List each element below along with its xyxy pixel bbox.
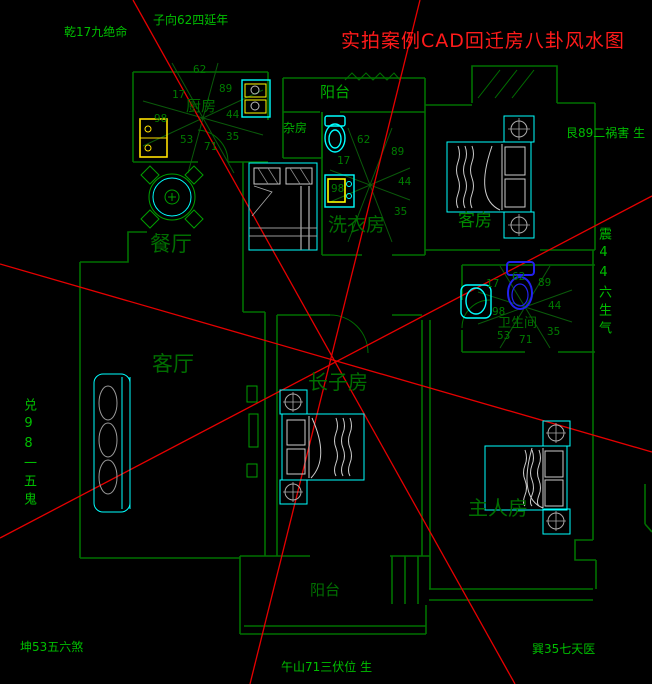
bagua-label-wu: 午山71三伏位 生 xyxy=(281,661,372,673)
bagua-number: 17 xyxy=(172,89,185,100)
cad-fengshui-floorplan: 实拍案例CAD回迁房八卦风水图 乾17九绝命 子向62四延年 艮89二祸害 生 … xyxy=(0,0,652,684)
room-label-laundry: 洗衣房 xyxy=(328,216,385,235)
bagua-label-dui: 兑98一五鬼 xyxy=(22,398,35,510)
stove xyxy=(242,80,270,117)
bagua-number: 44 xyxy=(548,300,561,311)
room-label-dining: 餐厅 xyxy=(150,234,192,255)
walls xyxy=(80,66,652,634)
bagua-number: 62 xyxy=(512,271,525,282)
bagua-number: 62 xyxy=(357,134,370,145)
bagua-label-gen: 艮89二祸害 生 xyxy=(566,127,645,139)
bagua-number: 71 xyxy=(519,334,532,345)
room-label-balcony-bottom: 阳台 xyxy=(310,583,340,598)
bagua-label-xun: 巽35七天医 xyxy=(532,643,595,655)
bed-north-room xyxy=(249,163,317,250)
sofa xyxy=(94,374,130,512)
bagua-label-zhen: 震44六生气 xyxy=(597,227,610,337)
bagua-number: 44 xyxy=(226,109,239,120)
room-label-storage: 杂房 xyxy=(283,122,307,134)
laundry-toilet xyxy=(325,116,345,152)
bagua-number: 53 xyxy=(180,134,193,145)
bagua-number: 98 xyxy=(492,306,505,317)
room-label-living: 客厅 xyxy=(152,354,194,375)
bagua-number: 89 xyxy=(219,83,232,94)
bagua-number: 35 xyxy=(226,131,239,142)
bagua-number: 98 xyxy=(331,183,344,194)
page-title: 实拍案例CAD回迁房八卦风水图 xyxy=(341,32,625,51)
room-label-balcony-top: 阳台 xyxy=(320,85,350,100)
bagua-number: 17 xyxy=(337,155,350,166)
bagua-number: 62 xyxy=(193,64,206,75)
bagua-label-kun: 坤53五六煞 xyxy=(20,641,83,653)
bagua-number: 89 xyxy=(391,146,404,157)
bagua-number: 35 xyxy=(547,326,560,337)
bagua-number: 35 xyxy=(394,206,407,217)
bagua-number: 71 xyxy=(204,141,217,152)
room-label-eldest-son: 长子房 xyxy=(308,372,368,392)
bagua-number: 17 xyxy=(486,278,499,289)
room-label-guest: 客房 xyxy=(458,213,492,230)
bagua-number: 44 xyxy=(398,176,411,187)
dining-table xyxy=(141,166,203,228)
bagua-number: 89 xyxy=(538,277,551,288)
room-label-master: 主人房 xyxy=(468,498,528,518)
bagua-number: 53 xyxy=(497,330,510,341)
bagua-number: 98 xyxy=(154,113,167,124)
bagua-label-zi: 子向62四延年 xyxy=(153,14,228,26)
bagua-label-qian: 乾17九绝命 xyxy=(64,26,127,38)
room-label-kitchen: 厨房 xyxy=(186,99,216,114)
